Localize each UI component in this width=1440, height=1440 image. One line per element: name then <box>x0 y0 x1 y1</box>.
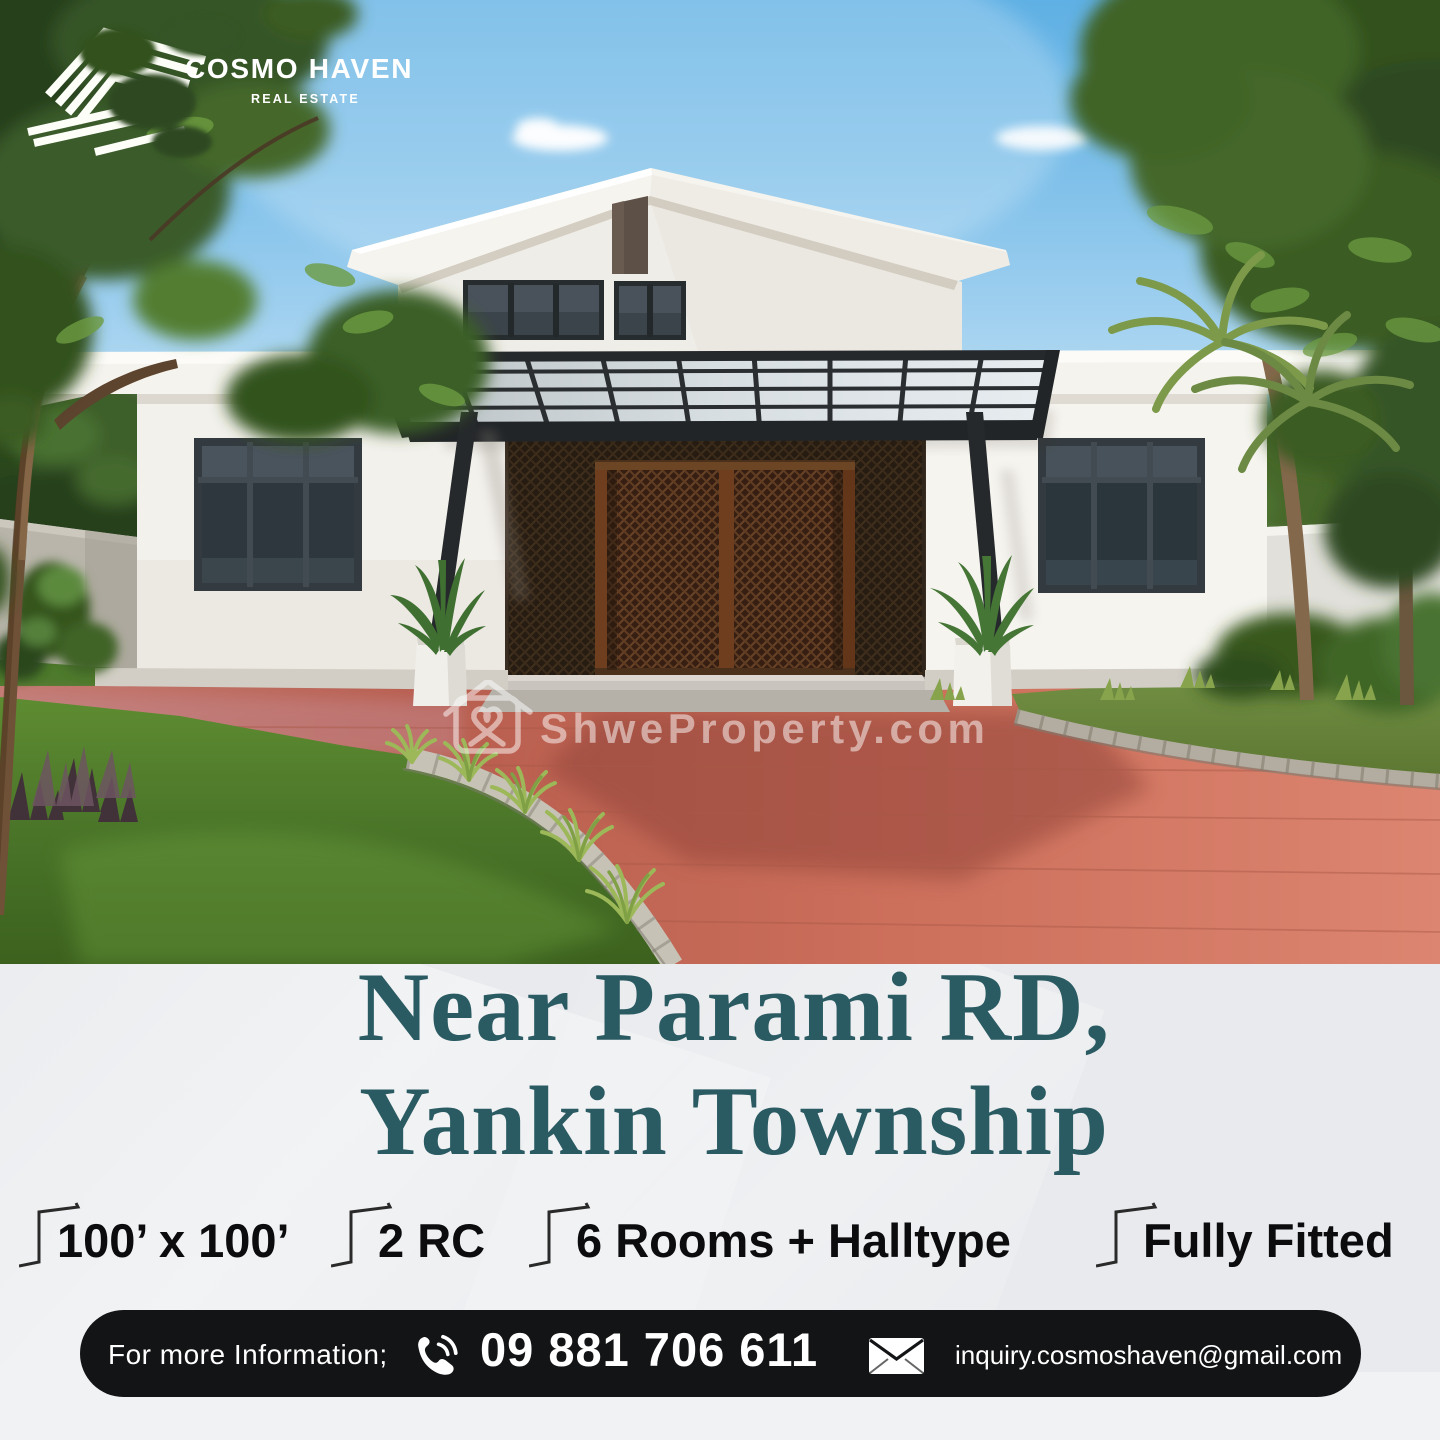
svg-text:ShweProperty.com: ShweProperty.com <box>540 705 989 752</box>
svg-text:REAL ESTATE: REAL ESTATE <box>251 92 360 106</box>
svg-text:COSMO HAVEN: COSMO HAVEN <box>185 53 413 84</box>
